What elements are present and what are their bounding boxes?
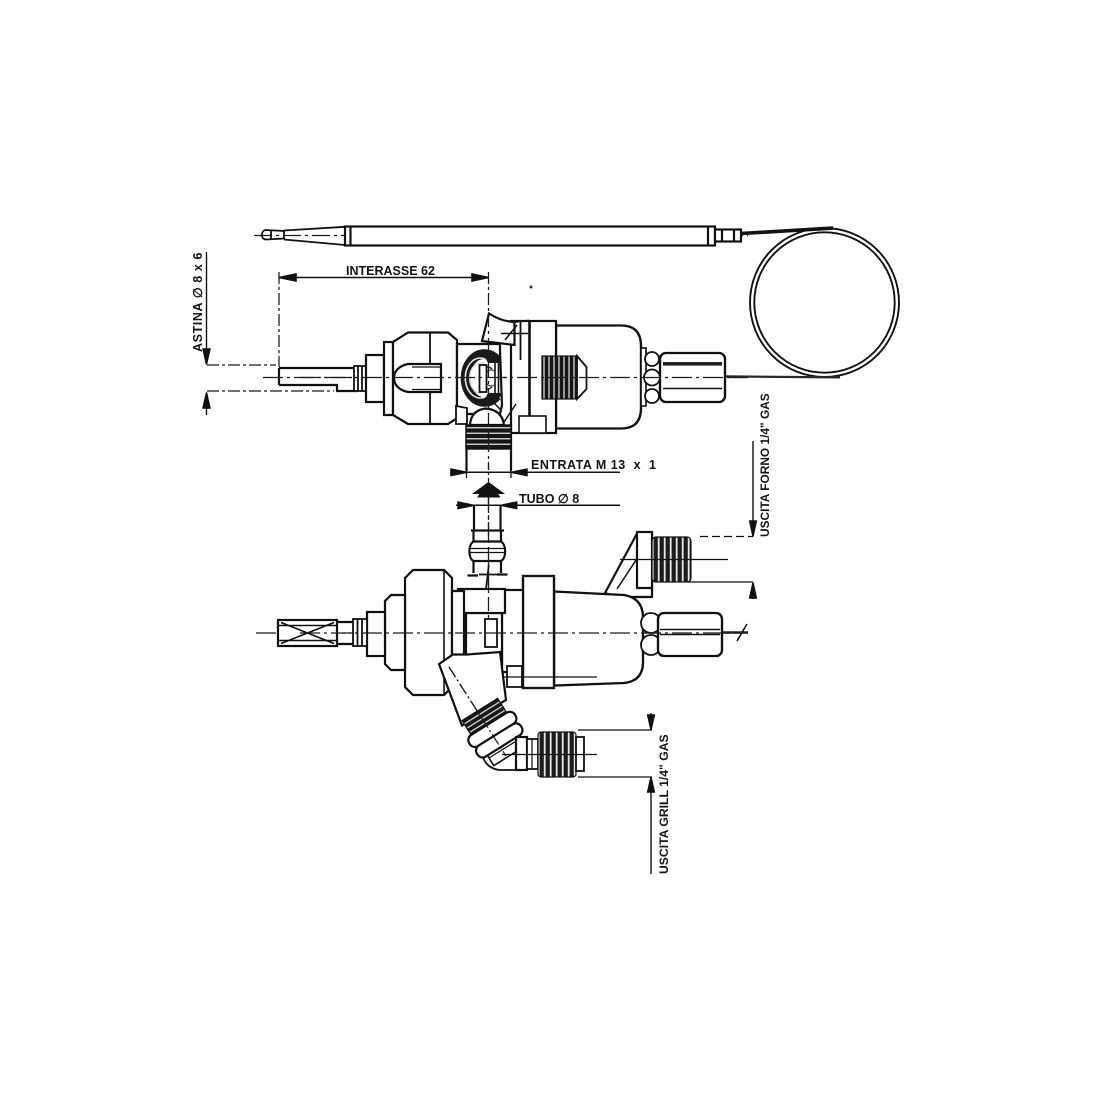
- svg-text:TUBO ∅ 8: TUBO ∅ 8: [519, 492, 579, 506]
- svg-text:USCITA FORNO 1/4" GAS: USCITA FORNO 1/4" GAS: [758, 393, 772, 537]
- svg-text:ENTRATA M 13 x 1: ENTRATA M 13 x 1: [531, 458, 656, 472]
- svg-text:USCITA GRILL 1/4" GAS: USCITA GRILL 1/4" GAS: [657, 734, 671, 874]
- svg-text:ASTINA ∅ 8 x 6: ASTINA ∅ 8 x 6: [191, 252, 205, 352]
- svg-text:INTERASSE 62: INTERASSE 62: [346, 264, 435, 278]
